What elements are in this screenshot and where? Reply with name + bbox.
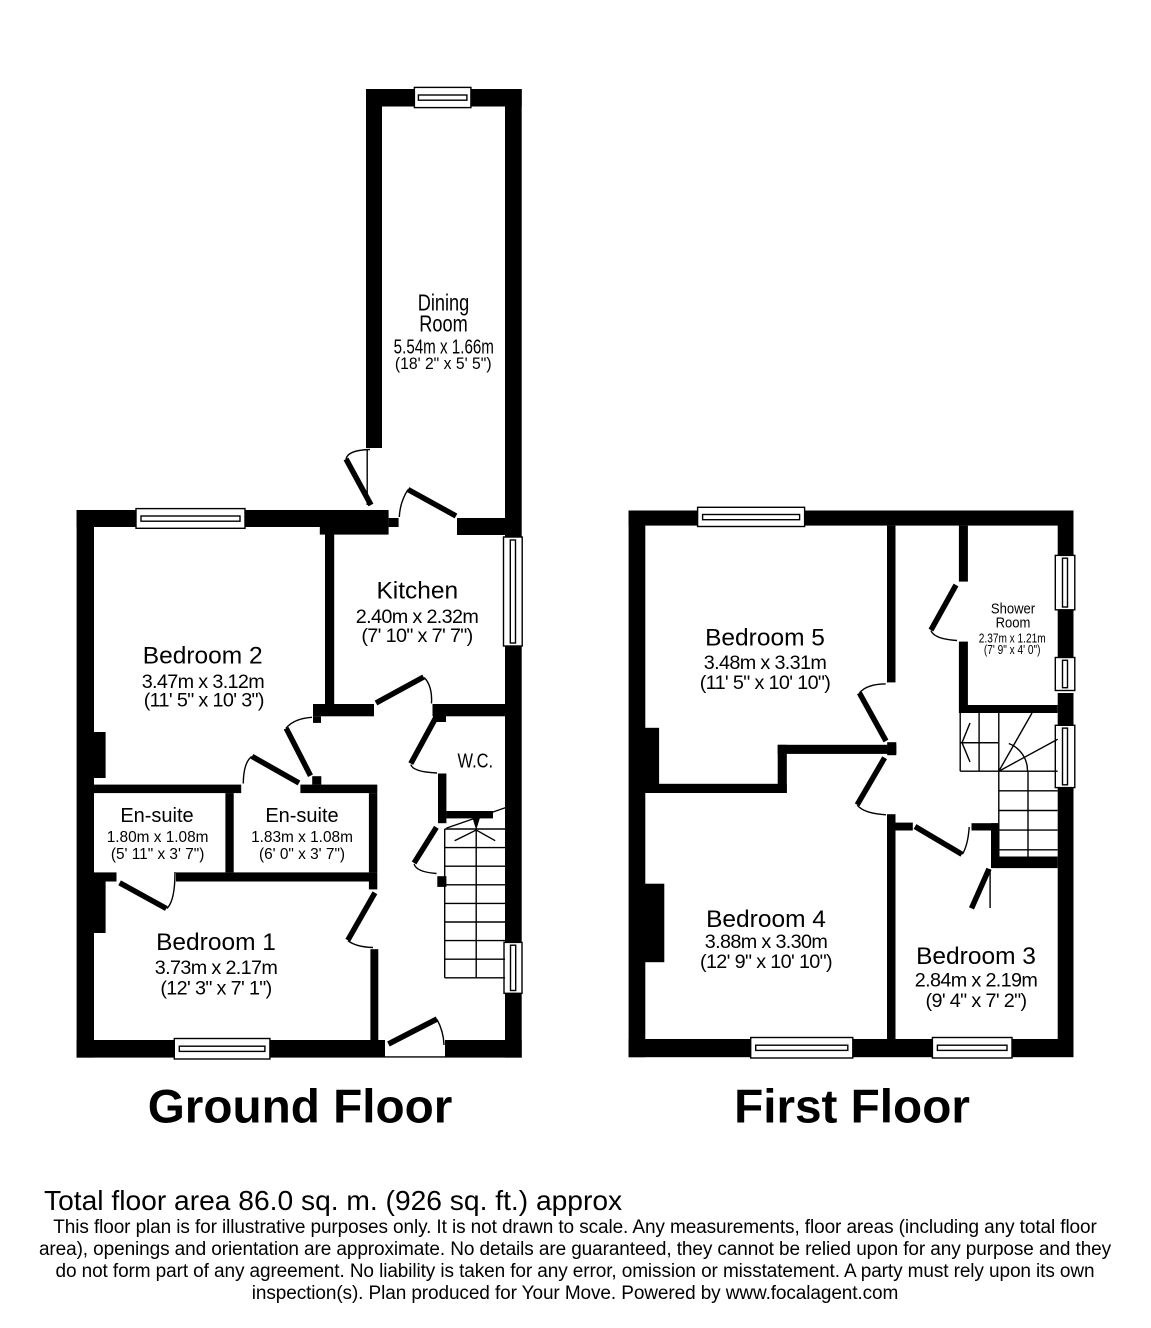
svg-text:(6' 0" x 3' 7"): (6' 0" x 3' 7") xyxy=(259,846,345,863)
svg-text:(9' 4" x 7' 2"): (9' 4" x 7' 2") xyxy=(926,990,1027,1012)
svg-text:Bedroom 2: Bedroom 2 xyxy=(143,643,263,670)
svg-text:Kitchen: Kitchen xyxy=(376,578,458,605)
svg-text:Bedroom 4: Bedroom 4 xyxy=(706,906,826,933)
svg-text:Room: Room xyxy=(419,311,467,337)
svg-text:Room: Room xyxy=(996,615,1031,631)
svg-text:Ground Floor: Ground Floor xyxy=(148,1081,453,1134)
svg-text:Total floor area 86.0 sq. m. (: Total floor area 86.0 sq. m. (926 sq. ft… xyxy=(44,1184,622,1216)
svg-text:(7' 10" x 7' 7"): (7' 10" x 7' 7") xyxy=(361,625,472,647)
svg-text:En-suite: En-suite xyxy=(120,805,193,827)
svg-text:do not form part of any agreem: do not form part of any agreement. No li… xyxy=(55,1261,1094,1282)
svg-text:(12' 9" x 10' 10"): (12' 9" x 10' 10") xyxy=(700,951,832,973)
svg-text:3.88m x 3.30m: 3.88m x 3.30m xyxy=(705,931,828,953)
svg-text:First Floor: First Floor xyxy=(734,1081,970,1134)
svg-text:Bedroom 3: Bedroom 3 xyxy=(916,943,1036,970)
svg-text:3.48m x 3.31m: 3.48m x 3.31m xyxy=(704,652,827,674)
svg-text:Bedroom 1: Bedroom 1 xyxy=(156,929,276,956)
svg-text:area), openings and orientatio: area), openings and orientation are appr… xyxy=(39,1239,1112,1260)
svg-text:3.73m x 2.17m: 3.73m x 2.17m xyxy=(155,957,278,979)
svg-text:(7' 9" x 4' 0"): (7' 9" x 4' 0") xyxy=(984,644,1041,657)
svg-text:(11' 5" x 10' 10"): (11' 5" x 10' 10") xyxy=(700,672,831,694)
svg-text:2.84m x 2.19m: 2.84m x 2.19m xyxy=(915,970,1038,992)
svg-text:W.C.: W.C. xyxy=(457,749,493,772)
svg-text:inspection(s). Plan produced f: inspection(s). Plan produced for Your Mo… xyxy=(252,1283,898,1304)
svg-text:(5' 11" x 3' 7"): (5' 11" x 3' 7") xyxy=(111,846,205,863)
svg-text:1.80m x 1.08m: 1.80m x 1.08m xyxy=(107,829,209,846)
svg-text:Bedroom 5: Bedroom 5 xyxy=(705,625,825,652)
svg-text:1.83m x 1.08m: 1.83m x 1.08m xyxy=(251,829,353,846)
svg-text:This floor plan is for illustr: This floor plan is for illustrative purp… xyxy=(53,1217,1097,1238)
svg-text:(12' 3" x 7' 1"): (12' 3" x 7' 1") xyxy=(160,977,271,999)
svg-text:(11' 5" x 10' 3"): (11' 5" x 10' 3") xyxy=(144,690,264,712)
svg-text:(18' 2" x 5' 5"): (18' 2" x 5' 5") xyxy=(395,355,492,373)
svg-text:En-suite: En-suite xyxy=(265,805,338,827)
